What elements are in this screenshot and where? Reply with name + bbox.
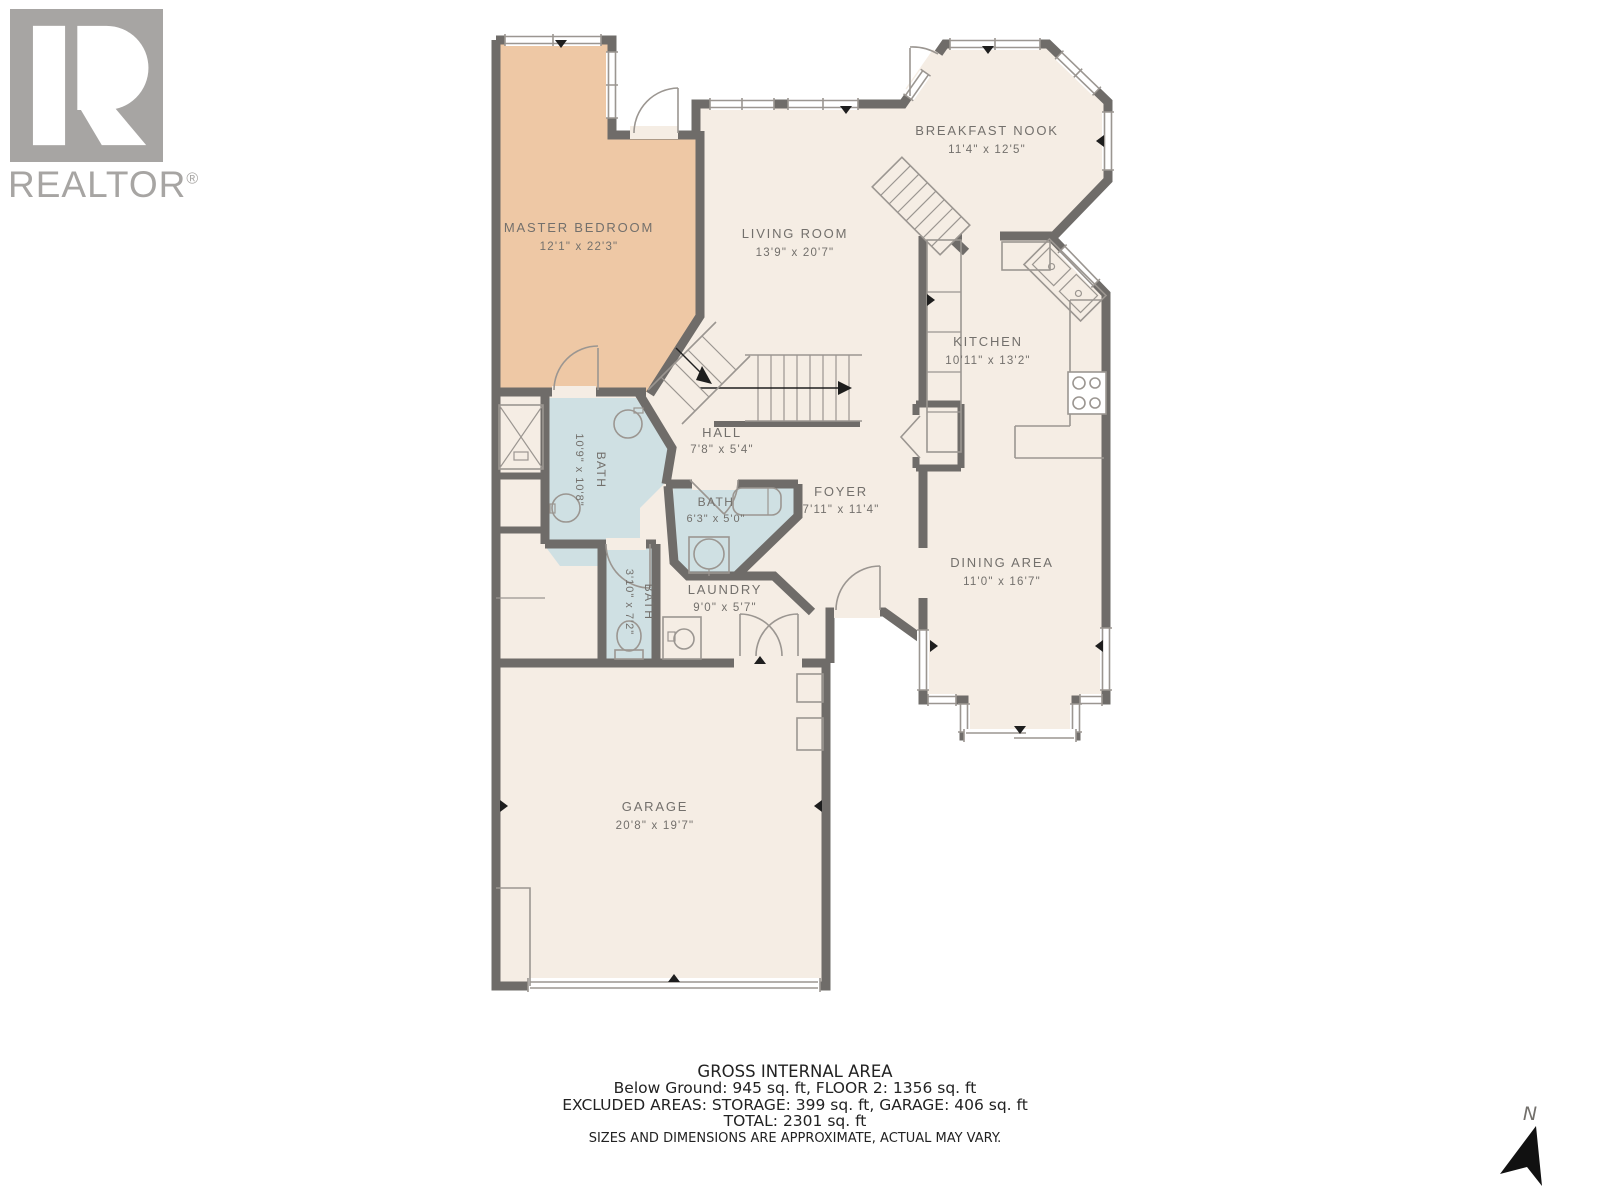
- window-living-top-1: [710, 98, 774, 110]
- room-dims-living-room: 13'9" x 20'7": [756, 247, 835, 259]
- room-label-foyer: FOYER: [814, 484, 868, 499]
- master-bedroom-fill: [496, 40, 696, 392]
- window-dining-right: [1100, 628, 1112, 690]
- room-label-breakfast-nook: BREAKFAST NOOK: [915, 123, 1058, 138]
- room-label-laundry: LAUNDRY: [688, 582, 763, 597]
- window-dining-left: [917, 630, 929, 690]
- room-label-master-bedroom: MASTER BEDROOM: [504, 220, 654, 235]
- window-bay-left: [958, 704, 970, 732]
- window-bay-right: [1070, 704, 1082, 732]
- window-nook-top: [950, 38, 1040, 50]
- room-label-dining-area: DINING AREA: [950, 555, 1054, 570]
- window-bay-top-left: [928, 694, 956, 706]
- room-label-bath-narrow: BATH: [642, 584, 656, 621]
- area-summary-title: GROSS INTERNAL AREA: [0, 1063, 1590, 1080]
- room-dims-bath-middle: 6'3" x 5'0": [686, 513, 745, 525]
- room-dims-kitchen: 10'11" x 13'2": [945, 355, 1030, 367]
- room-label-kitchen: KITCHEN: [953, 334, 1023, 349]
- room-dims-master-bedroom: 12'1" x 22'3": [540, 241, 619, 253]
- room-dims-garage: 20'8" x 19'7": [616, 820, 695, 832]
- area-summary-disclaimer: SIZES AND DIMENSIONS ARE APPROXIMATE, AC…: [0, 1131, 1590, 1147]
- floor-plan-svg: MASTER BEDROOM 12'1" x 22'3" LIVING ROOM…: [0, 0, 1600, 1200]
- window-bay-top-right: [1080, 694, 1102, 706]
- room-label-bath-middle: BATH: [698, 495, 735, 509]
- area-summary-line1: Below Ground: 945 sq. ft, FLOOR 2: 1356 …: [0, 1080, 1590, 1097]
- area-summary-total: TOTAL: 2301 sq. ft: [0, 1113, 1590, 1130]
- stove-icon: [1068, 372, 1106, 414]
- room-dims-laundry: 9'0" x 5'7": [693, 602, 756, 614]
- window-master-top: [505, 34, 601, 46]
- room-label-bath-large: BATH: [594, 452, 608, 489]
- area-summary-line2: EXCLUDED AREAS: STORAGE: 399 sq. ft, GAR…: [0, 1097, 1590, 1114]
- floor-plan-page: REALTOR®: [0, 0, 1600, 1200]
- window-master-side: [606, 52, 618, 118]
- room-dims-foyer: 7'11" x 11'4": [803, 504, 880, 516]
- room-label-garage: GARAGE: [622, 799, 688, 814]
- room-label-hall: HALL: [702, 425, 742, 440]
- room-dims-hall: 7'8" x 5'4": [690, 444, 753, 456]
- room-label-living-room: LIVING ROOM: [742, 226, 848, 241]
- area-summary: GROSS INTERNAL AREA Below Ground: 945 sq…: [0, 1063, 1590, 1147]
- room-dims-bath-large: 10'9" x 10'8": [573, 433, 585, 506]
- room-dims-bath-narrow: 3'10" x 7'2": [623, 569, 635, 635]
- room-dims-breakfast-nook: 11'4" x 12'5": [948, 144, 1026, 156]
- room-dims-dining-area: 11'0" x 16'7": [963, 576, 1041, 588]
